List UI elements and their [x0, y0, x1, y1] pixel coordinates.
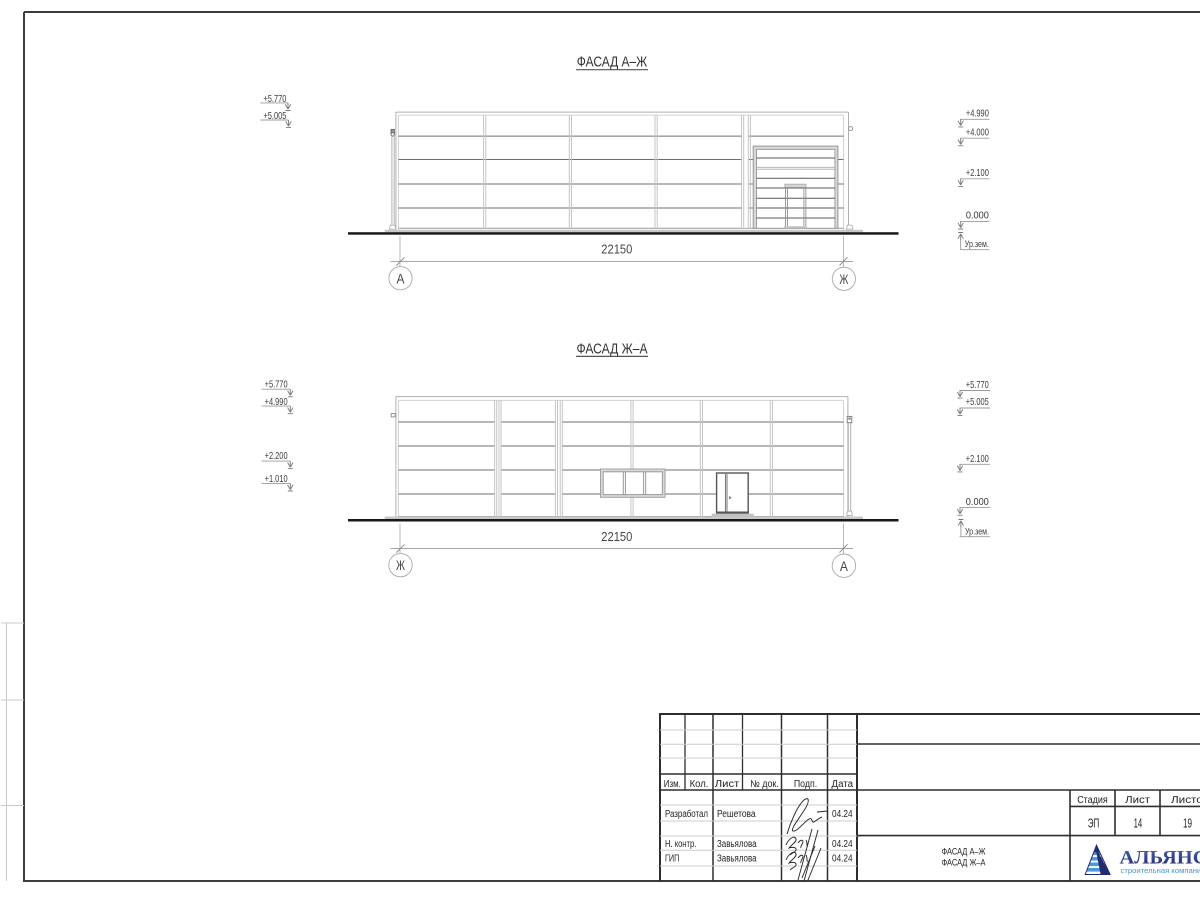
svg-text:ФАСАД Ж–А: ФАСАД Ж–А [942, 857, 987, 867]
svg-text:ЭП: ЭП [1088, 815, 1100, 830]
svg-text:Листов: Листов [1171, 795, 1200, 806]
svg-text:Лист: Лист [1125, 795, 1150, 806]
svg-text:Ж: Ж [396, 557, 405, 573]
svg-text:0.000: 0.000 [966, 497, 989, 508]
svg-text:А: А [840, 558, 849, 574]
svg-text:+5.770: +5.770 [966, 380, 989, 391]
svg-text:04.24: 04.24 [832, 853, 853, 864]
svg-text:Подп.: Подп. [794, 779, 817, 790]
svg-text:Решетова: Решетова [717, 809, 756, 820]
svg-text:ФАСАД А–Ж: ФАСАД А–Ж [942, 847, 986, 857]
svg-text:+4.000: +4.000 [966, 127, 989, 138]
svg-text:Ж: Ж [839, 271, 848, 287]
svg-text:+4.990: +4.990 [966, 109, 989, 120]
svg-text:14: 14 [1134, 815, 1143, 830]
svg-text:Лист: Лист [715, 779, 740, 790]
svg-text:22150: 22150 [601, 529, 632, 544]
svg-text:Завьялова: Завьялова [717, 839, 757, 850]
svg-text:№ док.: № док. [750, 779, 779, 790]
svg-text:04.24: 04.24 [832, 809, 853, 820]
svg-text:Ур.зем.: Ур.зем. [965, 239, 989, 250]
svg-text:А: А [397, 270, 406, 286]
svg-text:+5.005: +5.005 [966, 397, 989, 408]
svg-text:19: 19 [1183, 815, 1192, 830]
svg-text:04.24: 04.24 [832, 839, 853, 850]
svg-text:22150: 22150 [601, 241, 632, 256]
svg-text:Разработал: Разработал [665, 809, 708, 820]
svg-text:Завьялова: Завьялова [717, 853, 757, 864]
svg-text:+2.100: +2.100 [966, 168, 989, 179]
svg-text:+2.100: +2.100 [966, 454, 989, 465]
svg-text:Ур.зем.: Ур.зем. [965, 527, 989, 538]
svg-text:Стадия: Стадия [1077, 795, 1108, 806]
svg-text:Кол.: Кол. [690, 779, 709, 790]
svg-text:ФАСАД Ж–А: ФАСАД Ж–А [577, 342, 648, 358]
svg-text:строительная компания: строительная компания [1121, 866, 1200, 875]
svg-text:Н. контр.: Н. контр. [665, 839, 696, 850]
svg-text:0.000: 0.000 [966, 211, 989, 222]
svg-text:Изм.: Изм. [664, 779, 681, 790]
svg-text:+2.200: +2.200 [265, 451, 288, 462]
svg-text:ГИП: ГИП [665, 853, 679, 864]
svg-text:ФАСАД А–Ж: ФАСАД А–Ж [577, 55, 648, 71]
svg-text:Дата: Дата [832, 779, 854, 790]
